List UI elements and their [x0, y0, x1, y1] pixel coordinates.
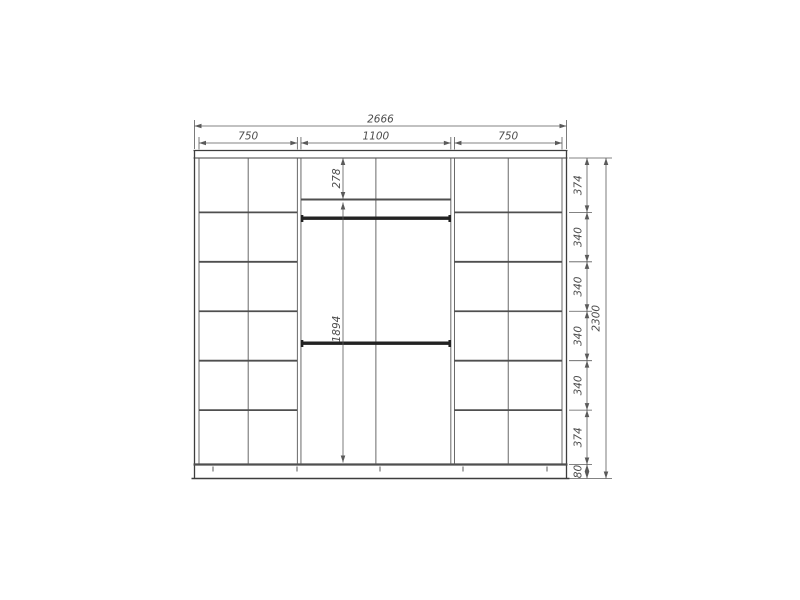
dim-label-row-2-height: 340	[573, 227, 585, 247]
dim-label-row-3-height: 340	[573, 276, 585, 296]
dim-arrow	[454, 141, 461, 146]
rod-end-bracket	[301, 215, 304, 222]
dim-arrow	[585, 205, 590, 212]
dim-arrow	[301, 141, 308, 146]
hanging-rod-2	[303, 342, 449, 345]
dim-arrow	[341, 192, 346, 199]
dim-arrow	[555, 141, 562, 146]
dim-arrow	[585, 304, 590, 311]
dim-arrow	[341, 456, 346, 463]
dim-arrow	[604, 472, 609, 479]
dim-arrow	[585, 410, 590, 417]
dim-arrow	[585, 262, 590, 269]
dim-arrow	[341, 158, 346, 165]
dim-arrow	[585, 212, 590, 219]
dim-arrow	[604, 158, 609, 165]
rod-end-bracket	[448, 340, 451, 347]
dim-label-row-4-height: 340	[573, 326, 585, 346]
rod-end-bracket	[301, 340, 304, 347]
dim-label-overall-height: 2300	[591, 305, 603, 332]
dim-label-right-section-width: 750	[498, 131, 518, 143]
dim-label-row-6-height: 374	[573, 427, 585, 447]
hanging-rod-1	[303, 217, 449, 220]
dim-arrow	[585, 255, 590, 262]
dim-arrow	[585, 458, 590, 465]
dim-label-middle-section-width: 1100	[363, 131, 390, 143]
dim-arrow	[585, 403, 590, 410]
dim-arrow	[560, 124, 567, 129]
dim-arrow	[444, 141, 451, 146]
dim-label-middle-hanging-space: 1894	[331, 316, 343, 343]
dim-arrow	[290, 141, 297, 146]
dim-label-plinth-height: 80	[573, 465, 585, 479]
dim-label-row-1-height: 374	[573, 175, 585, 195]
dim-arrow	[585, 158, 590, 165]
dim-arrow	[341, 203, 346, 210]
wardrobe-front-elevation-drawing: 2666750110075037434034034034037480230027…	[0, 0, 800, 600]
technical-drawing-page: 2666750110075037434034034034037480230027…	[0, 0, 800, 600]
dim-arrow	[195, 124, 202, 129]
dim-label-middle-top-compartment: 278	[331, 168, 343, 188]
dim-arrow	[585, 465, 590, 472]
dim-arrow	[585, 311, 590, 318]
dim-label-row-5-height: 340	[573, 375, 585, 395]
dim-arrow	[585, 361, 590, 368]
dim-arrow	[199, 141, 206, 146]
dim-arrow	[585, 472, 590, 479]
rod-end-bracket	[448, 215, 451, 222]
dim-arrow	[585, 354, 590, 361]
dim-label-left-section-width: 750	[238, 131, 258, 143]
dim-label-overall-width: 2666	[367, 114, 394, 126]
